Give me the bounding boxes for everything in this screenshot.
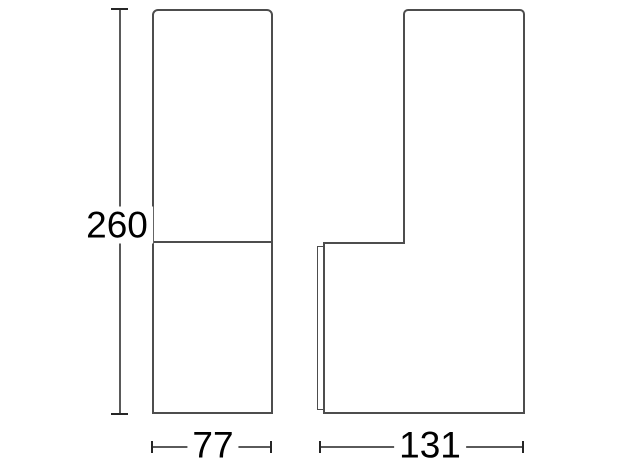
side-view-stem-outline xyxy=(403,9,525,244)
height-dimension-top-tick xyxy=(111,8,128,10)
height-dimension-label: 260 xyxy=(81,207,153,244)
side-depth-left-tick xyxy=(319,441,321,453)
front-width-right-tick xyxy=(270,441,272,453)
front-width-left-tick xyxy=(151,441,153,453)
front-width-dimension-label: 77 xyxy=(187,427,238,464)
technical-drawing-canvas: 260 77 131 xyxy=(0,0,632,474)
front-view-divider-line xyxy=(152,241,273,243)
height-dimension-bottom-tick xyxy=(111,413,128,415)
side-view-head-outline xyxy=(323,242,525,414)
side-depth-right-tick xyxy=(522,441,524,453)
side-depth-dimension-label: 131 xyxy=(394,427,466,464)
front-view-outline xyxy=(152,9,273,414)
